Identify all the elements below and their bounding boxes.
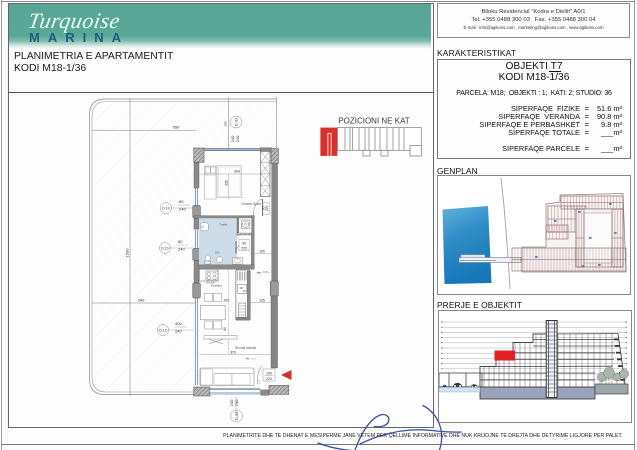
svg-text:D.10: D.10: [162, 207, 170, 211]
svg-text:240: 240: [178, 247, 185, 252]
svg-text:D.01: D.01: [234, 117, 239, 126]
svg-text:Tualet: Tualet: [219, 223, 227, 227]
svg-text:k.ind: k.ind: [251, 359, 256, 361]
svg-text:D.09: D.09: [234, 411, 239, 420]
svg-text:293: 293: [224, 299, 230, 303]
svg-text:D.10: D.10: [161, 247, 169, 251]
svg-text:105: 105: [259, 250, 265, 254]
svg-text:240: 240: [179, 207, 186, 212]
svg-text:Dhome Gjumi: Dhome Gjumi: [242, 202, 262, 206]
svg-text:80: 80: [178, 239, 183, 244]
svg-text:105: 105: [259, 298, 265, 302]
svg-text:80: 80: [223, 327, 227, 331]
svg-text:1500: 1500: [125, 248, 130, 258]
svg-text:340: 340: [138, 298, 145, 303]
svg-text:k.ind: k.ind: [263, 271, 268, 273]
svg-text:240: 240: [234, 399, 239, 406]
svg-text:Dhome Ndenje: Dhome Ndenje: [235, 346, 256, 350]
svg-text:220: 220: [265, 205, 269, 211]
svg-text:220: 220: [266, 377, 272, 381]
svg-text:POZICIONI NE KAT: POZICIONI NE KAT: [338, 117, 410, 126]
svg-text:100: 100: [266, 371, 272, 375]
svg-text:288: 288: [224, 121, 228, 126]
svg-text:D.12: D.12: [159, 329, 167, 333]
svg-text:370: 370: [230, 350, 236, 354]
svg-text:240: 240: [229, 399, 234, 406]
svg-text:309: 309: [234, 170, 240, 174]
svg-text:335: 335: [224, 180, 228, 186]
svg-text:250: 250: [215, 251, 220, 255]
svg-text:240: 240: [235, 135, 240, 142]
svg-text:-59: -59: [242, 289, 246, 293]
svg-text:80: 80: [179, 199, 184, 204]
svg-text:90: 90: [242, 242, 246, 246]
svg-text:Kuzhina: Kuzhina: [211, 284, 222, 288]
svg-text:400: 400: [175, 321, 182, 326]
svg-text:950: 950: [173, 125, 180, 130]
svg-text:220: 220: [241, 247, 247, 251]
svg-text:240: 240: [175, 329, 182, 334]
